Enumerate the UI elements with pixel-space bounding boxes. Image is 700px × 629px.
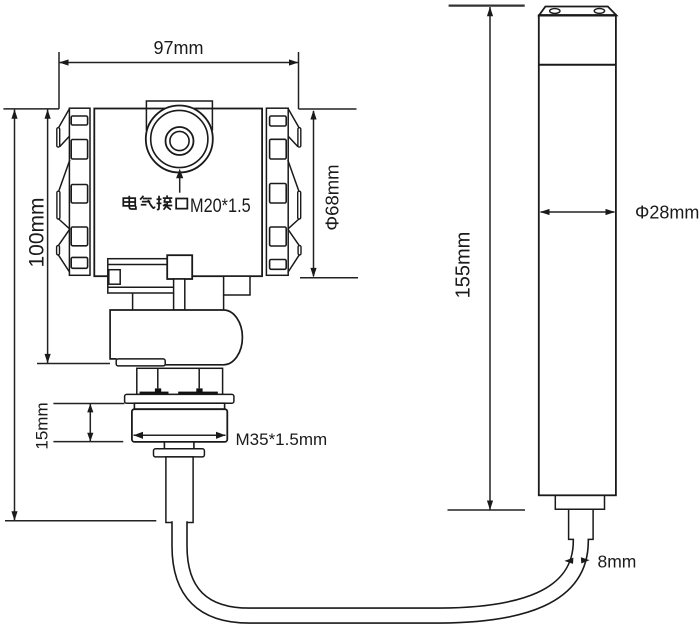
svg-text:M35*1.5mm: M35*1.5mm <box>236 430 328 449</box>
svg-text:97mm: 97mm <box>153 38 203 58</box>
svg-text:100mm: 100mm <box>26 197 49 267</box>
svg-text:8mm: 8mm <box>598 552 637 572</box>
svg-text:15mm: 15mm <box>33 402 52 449</box>
svg-text:Φ68mm: Φ68mm <box>322 164 343 230</box>
svg-text:M20*1.5: M20*1.5 <box>190 195 251 217</box>
svg-text:Φ28mm: Φ28mm <box>635 203 699 223</box>
svg-text:155mm: 155mm <box>453 232 475 299</box>
